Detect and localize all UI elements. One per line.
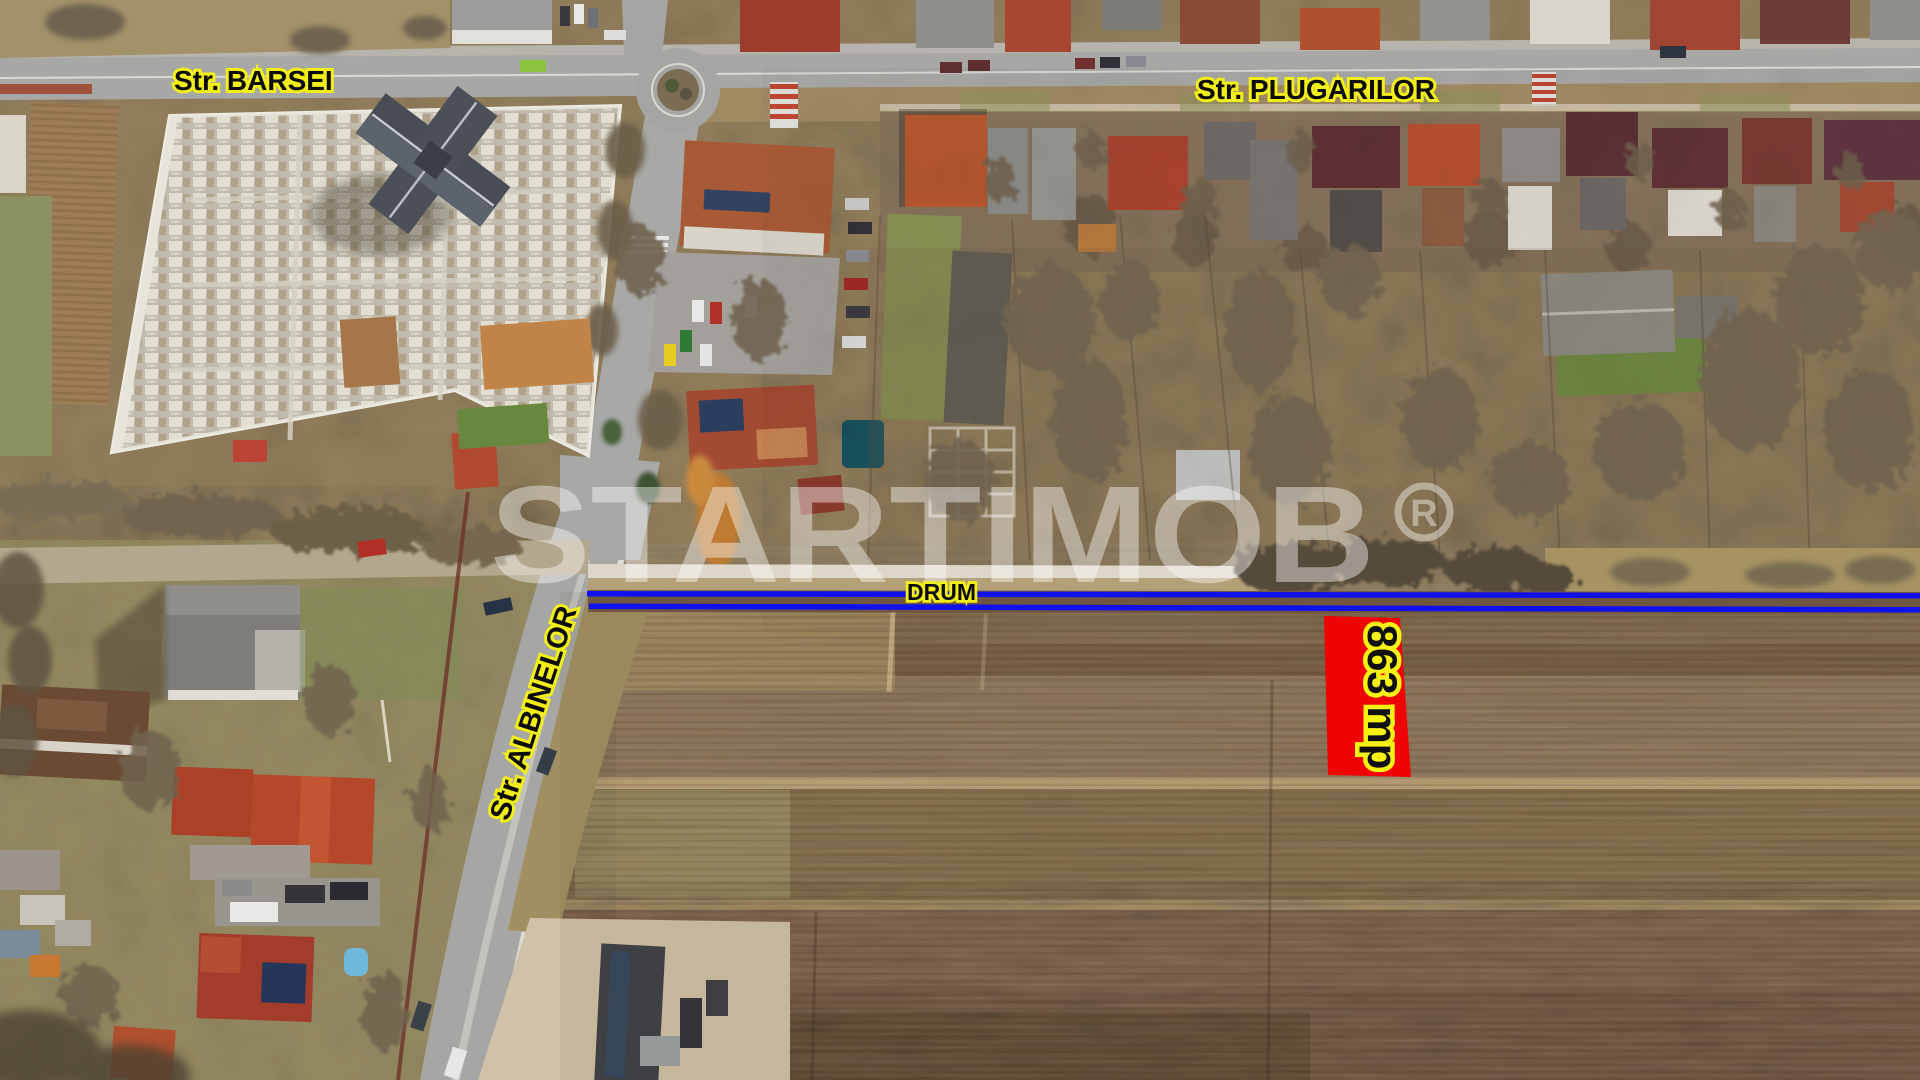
svg-text:Str. PLUGARILOR: Str. PLUGARILOR [1197,74,1435,105]
svg-text:R: R [1410,493,1437,535]
svg-text:Str. BARSEI: Str. BARSEI [174,65,333,96]
svg-text:863 mp: 863 mp [1359,625,1406,770]
svg-text:DRUM: DRUM [907,579,976,605]
